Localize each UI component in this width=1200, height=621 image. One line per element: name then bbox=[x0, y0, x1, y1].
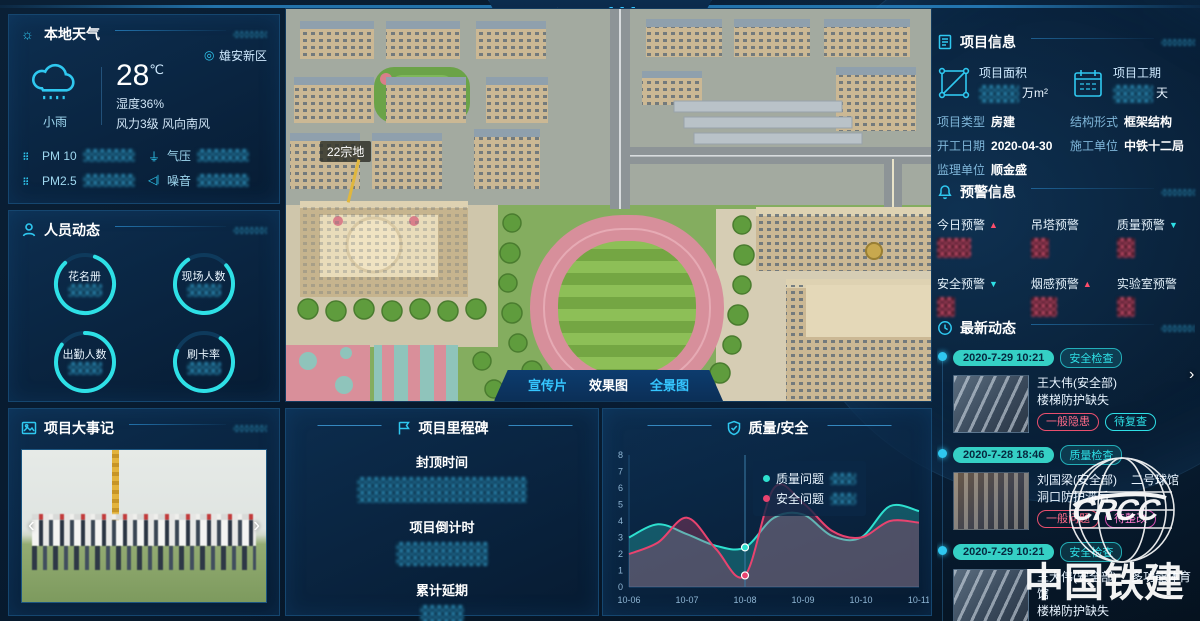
sun-gear-icon: ☼ bbox=[21, 26, 37, 42]
location-pin-icon: ◎ bbox=[204, 48, 215, 64]
redacted-value bbox=[197, 174, 249, 187]
redacted-value bbox=[197, 149, 249, 162]
weather-condition: 小雨 bbox=[23, 113, 87, 130]
redacted-value bbox=[1031, 238, 1049, 258]
onsite-count-ring[interactable]: 现场人数 bbox=[171, 251, 237, 317]
temperature-value: 28 bbox=[116, 59, 149, 92]
svg-text:6: 6 bbox=[618, 483, 623, 493]
svg-text:10-10: 10-10 bbox=[849, 595, 872, 605]
trend-up-icon: ▲ bbox=[1083, 279, 1092, 289]
redacted-value bbox=[830, 493, 856, 505]
model-render bbox=[286, 9, 931, 401]
milestone-photo-panel: 项目大事记 ‹ › bbox=[8, 408, 280, 616]
warnings-section: 预警信息 今日预警▲ 吊塔预警 质量预警▼ 安全预警▼ 烟感预警▲ 实验室预警 bbox=[937, 176, 1195, 320]
project-milestone-panel: 项目里程碑 封顶时间 项目倒计时 累计延期 bbox=[285, 408, 599, 616]
deco-blur bbox=[233, 31, 267, 38]
roster-ring[interactable]: 花名册 bbox=[52, 251, 118, 317]
contractor-field: 施工单位中铁十二局 bbox=[1070, 137, 1195, 154]
shield-check-icon bbox=[726, 420, 742, 436]
wind-text: 风力3级 风向南风 bbox=[116, 115, 210, 133]
redacted-value bbox=[187, 284, 221, 297]
redacted-value bbox=[1117, 238, 1135, 258]
countdown-label: 项目倒计时 bbox=[286, 517, 598, 536]
svg-text:10-11: 10-11 bbox=[908, 595, 929, 605]
construction-model-view[interactable]: 22宗地 宣传片 效果图 全景图 bbox=[285, 8, 932, 402]
svg-text:2: 2 bbox=[618, 549, 623, 559]
redacted-value bbox=[937, 238, 971, 258]
redacted-value bbox=[187, 362, 221, 375]
svg-text:0: 0 bbox=[618, 582, 623, 592]
deco-blur bbox=[1161, 39, 1195, 46]
feed-title: 最新动态 bbox=[960, 318, 1016, 338]
feed-category-badge: 质量检查 bbox=[1060, 445, 1122, 465]
humidity-text: 湿度36% bbox=[116, 95, 210, 113]
inspection-photo[interactable] bbox=[953, 375, 1029, 433]
svg-text:10-06: 10-06 bbox=[617, 595, 640, 605]
redacted-value bbox=[420, 605, 464, 621]
feed-category-badge: 安全检查 bbox=[1060, 348, 1122, 368]
carousel-next-icon[interactable]: › bbox=[253, 515, 260, 538]
svg-text:8: 8 bbox=[618, 450, 623, 460]
group-photo[interactable]: ‹ › bbox=[21, 449, 267, 603]
pressure-metric: ⏚ 气压 bbox=[148, 147, 267, 164]
svg-text:10-09: 10-09 bbox=[791, 595, 814, 605]
feed-item[interactable]: 2020-7-29 10:21安全检查 王大伟(安全部)多功能体育馆 楼梯防护缺… bbox=[937, 542, 1195, 621]
structure-type-field: 结构形式框架结构 bbox=[1070, 113, 1195, 130]
noise-metric: ◁𝄁 噪音 bbox=[148, 172, 267, 189]
timeline-dot-icon bbox=[938, 449, 947, 458]
trend-down-icon: ▼ bbox=[1169, 220, 1178, 230]
project-area-stat: 项目面积 万m² bbox=[937, 64, 1061, 103]
today-warning: 今日预警▲ bbox=[937, 216, 1023, 261]
rain-cloud-icon: 小雨 bbox=[23, 62, 87, 130]
person-icon bbox=[21, 222, 37, 238]
redacted-value bbox=[830, 473, 856, 485]
delay-label: 累计延期 bbox=[286, 580, 598, 599]
inspection-photo[interactable] bbox=[953, 569, 1029, 621]
pm10-metric: ᎒᎒ PM 10 bbox=[23, 147, 142, 164]
swipe-rate-ring[interactable]: 刷卡率 bbox=[171, 329, 237, 395]
carousel-prev-icon[interactable]: ‹ bbox=[28, 515, 35, 538]
crane-warning: 吊塔预警 bbox=[1031, 216, 1109, 261]
location-badge[interactable]: ◎ 雄安新区 bbox=[204, 47, 267, 64]
feed-item[interactable]: 2020-7-28 18:46质量检查 刘国梁(安全部)二号球馆 洞口防护滞后 … bbox=[937, 445, 1195, 542]
svg-text:4: 4 bbox=[618, 516, 623, 526]
deco-blur bbox=[1161, 189, 1195, 196]
area-measure-icon bbox=[937, 66, 971, 100]
events-panel-title: 项目大事记 bbox=[44, 418, 114, 438]
hazard-tag: 一般隐患 bbox=[1037, 413, 1099, 431]
project-duration-stat: 项目工期 天 bbox=[1071, 64, 1195, 103]
personnel-panel-title: 人员动态 bbox=[44, 220, 100, 240]
plot-22-label: 22宗地 bbox=[320, 141, 371, 162]
svg-text:5: 5 bbox=[618, 500, 623, 510]
gauge-icon: ⏚ bbox=[148, 148, 161, 164]
svg-text:10-08: 10-08 bbox=[733, 595, 756, 605]
deco-blur bbox=[1161, 325, 1195, 332]
feed-date-badge: 2020-7-28 18:46 bbox=[953, 447, 1054, 463]
project-info-title: 项目信息 bbox=[960, 32, 1016, 52]
hazard-tag: 一般问题 bbox=[1037, 510, 1099, 528]
inspection-photo[interactable] bbox=[953, 472, 1029, 530]
trend-up-icon: ▲ bbox=[989, 220, 998, 230]
attendance-ring[interactable]: 出勤人数 bbox=[52, 329, 118, 395]
topping-time-label: 封顶时间 bbox=[286, 452, 598, 471]
deco-blur bbox=[233, 425, 267, 432]
project-info-section: 项目信息 项目面积 万m² 项目工期 天 项目类型房建 结构形式框架结构 bbox=[937, 26, 1195, 178]
calendar-icon bbox=[1071, 66, 1105, 100]
status-tag: 待复查 bbox=[1105, 413, 1156, 431]
clock-icon bbox=[937, 320, 953, 336]
project-type-field: 项目类型房建 bbox=[937, 113, 1062, 130]
pm-icon: ᎒᎒ bbox=[23, 148, 36, 164]
redacted-value bbox=[979, 85, 1019, 103]
redacted-value bbox=[68, 362, 102, 375]
redacted-value bbox=[357, 477, 527, 503]
warnings-title: 预警信息 bbox=[960, 182, 1016, 202]
photo-icon bbox=[21, 420, 37, 436]
latest-activity-section: 最新动态 2020-7-29 10:21安全检查 王大伟(安全部) 楼梯防护缺失… bbox=[937, 312, 1195, 621]
render-view-button[interactable]: 效果图 bbox=[589, 375, 628, 394]
redacted-value bbox=[83, 174, 135, 187]
redacted-value bbox=[68, 284, 102, 297]
trend-down-icon: ▼ bbox=[989, 279, 998, 289]
quality-safety-panel: 质量/安全 01234567810-0610-0710-0810-0910-10… bbox=[602, 408, 932, 616]
flag-icon bbox=[396, 420, 412, 436]
pm25-metric: ᎒᎒ PM2.5 bbox=[23, 172, 142, 189]
redacted-value bbox=[1113, 85, 1153, 103]
feed-item[interactable]: 2020-7-29 10:21安全检查 王大伟(安全部) 楼梯防护缺失 一般隐患… bbox=[937, 348, 1195, 445]
svg-text:3: 3 bbox=[618, 533, 623, 543]
scroll-right-icon[interactable]: › bbox=[1189, 366, 1194, 384]
redacted-value bbox=[83, 149, 135, 162]
milestone-panel-title: 项目里程碑 bbox=[419, 418, 489, 438]
bell-icon bbox=[937, 184, 953, 200]
timeline-dot-icon bbox=[938, 352, 947, 361]
pm-icon: ᎒᎒ bbox=[23, 173, 36, 189]
chart-tooltip: 质量问题 安全问题 bbox=[753, 461, 866, 516]
personnel-panel: 人员动态 花名册 现场人数 出勤人数 刷卡率 bbox=[8, 210, 280, 402]
status-tag: 待整改 bbox=[1105, 510, 1156, 528]
document-icon bbox=[937, 34, 953, 50]
redacted-value bbox=[396, 542, 488, 566]
svg-text:10-07: 10-07 bbox=[675, 595, 698, 605]
quality-warning: 质量预警▼ bbox=[1117, 216, 1195, 261]
timeline-dot-icon bbox=[938, 546, 947, 555]
feed-date-badge: 2020-7-29 10:21 bbox=[953, 350, 1054, 366]
feed-date-badge: 2020-7-29 10:21 bbox=[953, 544, 1054, 560]
feed-category-badge: 安全检查 bbox=[1060, 542, 1122, 562]
svg-text:1: 1 bbox=[618, 566, 623, 576]
view-mode-switcher: 宣传片 效果图 全景图 bbox=[494, 370, 723, 401]
construction-dashboard: 安全施工 111 天 ☼ 本地天气 ◎ 雄安新区 小雨 28℃ 湿度 bbox=[0, 0, 1200, 621]
deco-blur bbox=[233, 227, 267, 234]
start-date-field: 开工日期2020-04-30 bbox=[937, 137, 1062, 154]
panorama-button[interactable]: 全景图 bbox=[650, 375, 689, 394]
weather-panel: ☼ 本地天气 ◎ 雄安新区 小雨 28℃ 湿度36% 风力3级 风向南风 bbox=[8, 14, 280, 204]
svg-text:7: 7 bbox=[618, 467, 623, 477]
weather-panel-title: 本地天气 bbox=[44, 24, 100, 44]
chart-panel-title: 质量/安全 bbox=[749, 418, 809, 438]
promo-video-button[interactable]: 宣传片 bbox=[528, 375, 567, 394]
speaker-icon: ◁𝄁 bbox=[148, 173, 161, 189]
